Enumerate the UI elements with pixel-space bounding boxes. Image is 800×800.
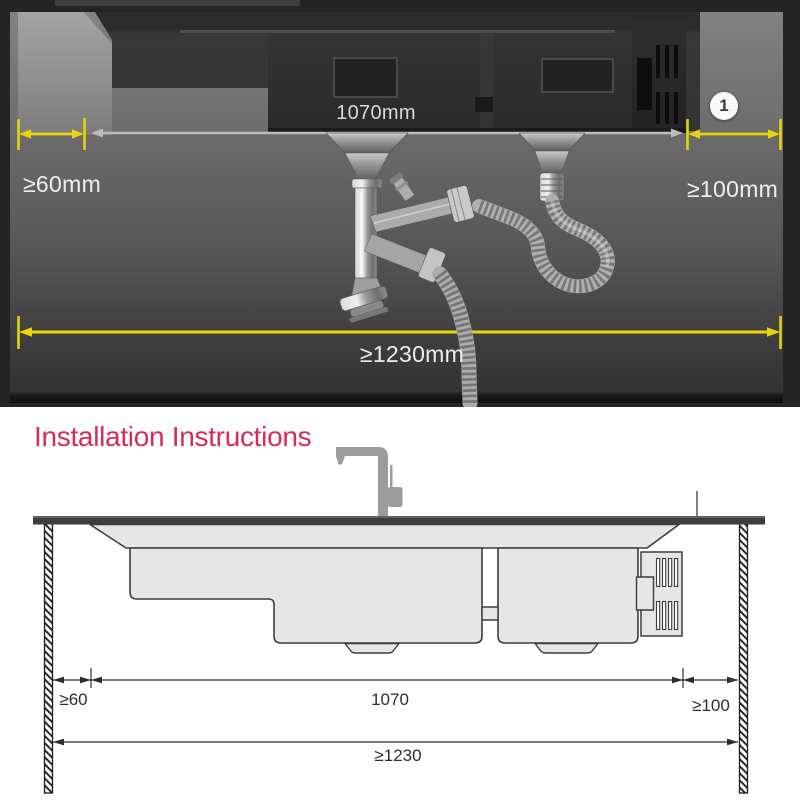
drawing-dim-label-basin-width: 1070 xyxy=(360,690,420,710)
dim-line-right-clearance xyxy=(688,119,781,150)
sink-cross-section xyxy=(90,525,682,654)
sink-flange xyxy=(90,525,679,549)
installation-instructions-section: Installation Instructions xyxy=(0,407,800,800)
under-sink-photo: 1070mm ≥60mm ≥100mm ≥1230mm 1 xyxy=(0,0,800,407)
drawing-dim-label-total-width: ≥1230 xyxy=(368,746,428,766)
accessory-pin xyxy=(696,491,698,516)
sink-left-bowl-profile xyxy=(130,548,482,643)
photo-dim-label-1070: 1070mm xyxy=(326,102,426,125)
photo-dim-label-right-clearance: ≥100mm xyxy=(687,176,778,203)
faucet-icon xyxy=(336,447,403,516)
sink-right-bowl-profile xyxy=(498,548,638,643)
vent-unit-tab xyxy=(637,577,654,610)
wall-right-hatch xyxy=(740,523,748,793)
right-drain-fitting xyxy=(535,644,598,654)
left-drain-fitting xyxy=(345,644,399,654)
drawing-dim-label-right-clearance: ≥100 xyxy=(683,696,739,716)
dim-arrowheads xyxy=(53,677,738,746)
product-installation-image: 1070mm ≥60mm ≥100mm ≥1230mm 1 Installati… xyxy=(0,0,800,800)
bowl-connector-block xyxy=(482,607,498,620)
wall-left-hatch xyxy=(45,523,53,793)
installation-drawing xyxy=(0,407,800,800)
photo-dim-label-total-width: ≥1230mm xyxy=(352,341,472,368)
callout-1-badge: 1 xyxy=(710,92,738,120)
countertop xyxy=(33,516,765,525)
photo-dim-label-left-clearance: ≥60mm xyxy=(23,171,101,198)
drawing-dim-label-left-clearance: ≥60 xyxy=(46,690,101,710)
